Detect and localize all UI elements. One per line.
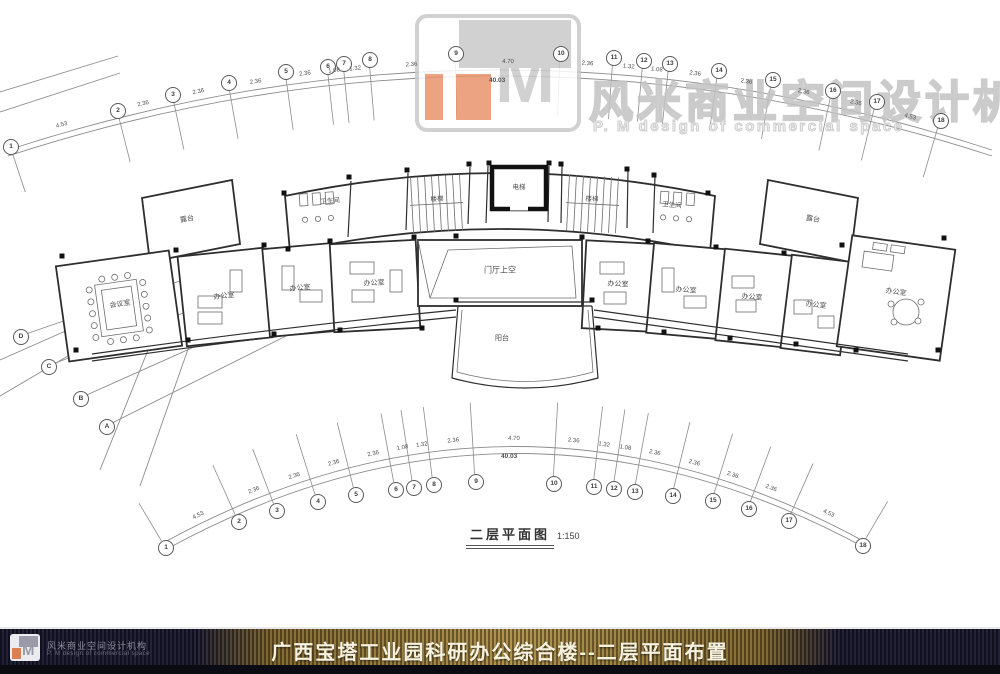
chair <box>89 310 96 317</box>
grid-stick <box>119 117 130 162</box>
dimension-label: 4.70 <box>502 59 514 65</box>
dimension-label: 1.08 <box>328 67 340 74</box>
room-label: 办公室 <box>607 278 628 289</box>
screenshot-root: { "watermark": { "logo_letter": "M", "br… <box>0 0 1000 674</box>
grid-stick <box>470 403 474 474</box>
grid-bubble: 3 <box>165 87 181 103</box>
column <box>420 326 425 331</box>
executive-table <box>888 299 924 325</box>
column <box>596 326 601 331</box>
grid-bubble: 17 <box>869 94 885 110</box>
grid-bubble: 4 <box>221 75 237 91</box>
grid-stick <box>139 503 161 541</box>
column <box>487 161 492 166</box>
grid-bubble: 18 <box>933 113 949 129</box>
column <box>580 235 585 240</box>
grid-stick <box>923 127 938 177</box>
column <box>840 243 845 248</box>
top-total-dimension: 40.03 <box>489 77 505 84</box>
grid-bubble: C <box>41 359 57 375</box>
column <box>412 235 417 240</box>
column <box>286 247 291 252</box>
room-label: 卫生间 <box>320 194 340 206</box>
room-label: 门厅上空 <box>484 265 516 276</box>
grid-bubble: 9 <box>448 46 464 62</box>
grid-bubble: 7 <box>406 480 422 496</box>
grid-stick <box>558 60 560 116</box>
grid-bubble: D <box>13 329 29 345</box>
chair <box>111 274 118 281</box>
column <box>174 248 179 253</box>
column <box>706 191 711 196</box>
grid-stick <box>370 66 375 121</box>
grid-stick <box>714 434 732 494</box>
grid-bubble: 17 <box>781 513 797 529</box>
chair <box>124 272 131 279</box>
chair <box>133 334 140 341</box>
drawing-title: 二层平面图 <box>466 524 554 549</box>
grid-bubble: 8 <box>426 477 442 493</box>
footer-title: 广西宝塔工业园科研办公综合楼--二层平面布置 <box>0 636 1000 665</box>
chair <box>144 315 151 322</box>
chair <box>143 303 150 310</box>
grid-bubble: A <box>99 419 115 435</box>
room-label: 办公室 <box>675 284 697 295</box>
grid-stick <box>861 108 874 161</box>
column <box>272 332 277 337</box>
chair <box>87 298 94 305</box>
column <box>262 243 267 248</box>
grid-stick <box>296 434 315 494</box>
room-label: 电梯 <box>513 181 526 191</box>
chair <box>120 336 127 343</box>
grid-stick <box>609 64 613 119</box>
grid-stick <box>791 463 813 513</box>
room-label: 楼梯 <box>585 193 599 204</box>
column <box>714 245 719 250</box>
column <box>590 298 595 303</box>
grid-stick <box>866 501 888 538</box>
column <box>936 348 941 353</box>
column <box>559 162 564 167</box>
grid-bubble: 1 <box>3 139 19 155</box>
column <box>728 336 733 341</box>
drawing-scale: 1:150 <box>557 531 580 541</box>
grid-bubble: 12 <box>606 481 622 497</box>
grid-bubble: 16 <box>741 501 757 517</box>
balcony <box>452 302 598 388</box>
column <box>467 162 472 167</box>
grid-stick <box>12 153 25 192</box>
grid-bubble: 14 <box>711 63 727 79</box>
grid-bubble: 15 <box>765 72 781 88</box>
column <box>625 167 630 172</box>
grid-bubble: 15 <box>705 493 721 509</box>
column <box>454 298 459 303</box>
grid-stick <box>286 78 293 130</box>
grid-bubble: 11 <box>606 50 622 66</box>
room-label: 卫生间 <box>662 198 682 210</box>
column <box>652 173 657 178</box>
grid-stick <box>173 101 183 150</box>
grid-bubble: 9 <box>468 474 484 490</box>
grid-bubble: 18 <box>855 538 871 554</box>
footer-bar: M 风米商业空间设计机构 P. M design of commercial s… <box>0 627 1000 667</box>
grid-bubble: 1 <box>158 540 174 556</box>
chair <box>92 334 99 341</box>
dimension-label: 2.36 <box>249 78 261 86</box>
column <box>662 330 667 335</box>
column <box>454 234 459 239</box>
column <box>942 236 947 241</box>
grid-stick <box>635 413 648 484</box>
chair <box>141 291 148 298</box>
bottom-total-dimension: 40.03 <box>501 453 517 460</box>
room-label: 阳台 <box>495 333 509 343</box>
dimension-label: 1.32 <box>349 65 361 72</box>
grid-bubble: 13 <box>627 484 643 500</box>
column <box>74 348 79 353</box>
column <box>338 328 343 333</box>
grid-bubble: 4 <box>310 494 326 510</box>
grid-stick <box>229 89 238 139</box>
drawing-title-block: 二层平面图1:150 <box>466 524 580 549</box>
grid-bubble: 3 <box>269 503 285 519</box>
grid-bubble: 16 <box>825 83 841 99</box>
room-label: 楼梯 <box>430 193 444 204</box>
chair <box>91 322 98 329</box>
column <box>854 348 859 353</box>
dimension-label: 2.36 <box>406 61 418 68</box>
grid-stick <box>662 70 668 124</box>
room-label: 办公室 <box>363 277 384 288</box>
grid-bubble: 10 <box>553 46 569 62</box>
room-label: 办公室 <box>289 282 311 294</box>
grid-stick <box>455 60 457 116</box>
grid-bubble: B <box>73 391 89 407</box>
grid-stick <box>328 73 334 125</box>
room-label: 露台 <box>805 213 820 225</box>
column <box>646 239 651 244</box>
footer-base-strip <box>0 665 1000 674</box>
column <box>405 168 410 173</box>
column <box>186 338 191 343</box>
grid-stick <box>381 413 394 482</box>
grid-bubble: 5 <box>348 487 364 503</box>
column <box>347 175 352 180</box>
grid-bubble: 2 <box>110 103 126 119</box>
grid-bubble: 8 <box>362 52 378 68</box>
grid-bubble: 10 <box>546 476 562 492</box>
chair <box>107 338 114 345</box>
grid-stick <box>253 449 274 504</box>
grid-bubble: 2 <box>231 514 247 530</box>
dimension-label: 1.08 <box>651 66 663 73</box>
grid-bubble: 12 <box>636 53 652 69</box>
column <box>328 239 333 244</box>
grid-stick <box>637 67 642 122</box>
chair <box>146 327 153 334</box>
dimension-label: 2.36 <box>568 438 580 445</box>
grid-bubble: 14 <box>665 488 681 504</box>
chair <box>139 279 146 286</box>
grid-stick <box>674 422 690 488</box>
chair <box>98 276 105 283</box>
column <box>794 342 799 347</box>
column <box>782 251 787 256</box>
room-label: 办公室 <box>805 299 827 311</box>
dimension-label: 2.36 <box>581 61 593 68</box>
grid-bubble: 13 <box>662 56 678 72</box>
grid-bubble: 5 <box>278 64 294 80</box>
dimension-label: 4.70 <box>508 435 520 441</box>
room-label: 办公室 <box>741 291 763 303</box>
grid-stick <box>213 465 235 514</box>
grid-bubble: 6 <box>388 482 404 498</box>
column <box>282 191 287 196</box>
column <box>60 254 65 259</box>
grid-stick <box>553 403 557 476</box>
dimension-label: 1.32 <box>598 441 610 449</box>
grid-bubble: 11 <box>586 479 602 495</box>
chair <box>86 287 93 294</box>
column <box>547 161 552 166</box>
